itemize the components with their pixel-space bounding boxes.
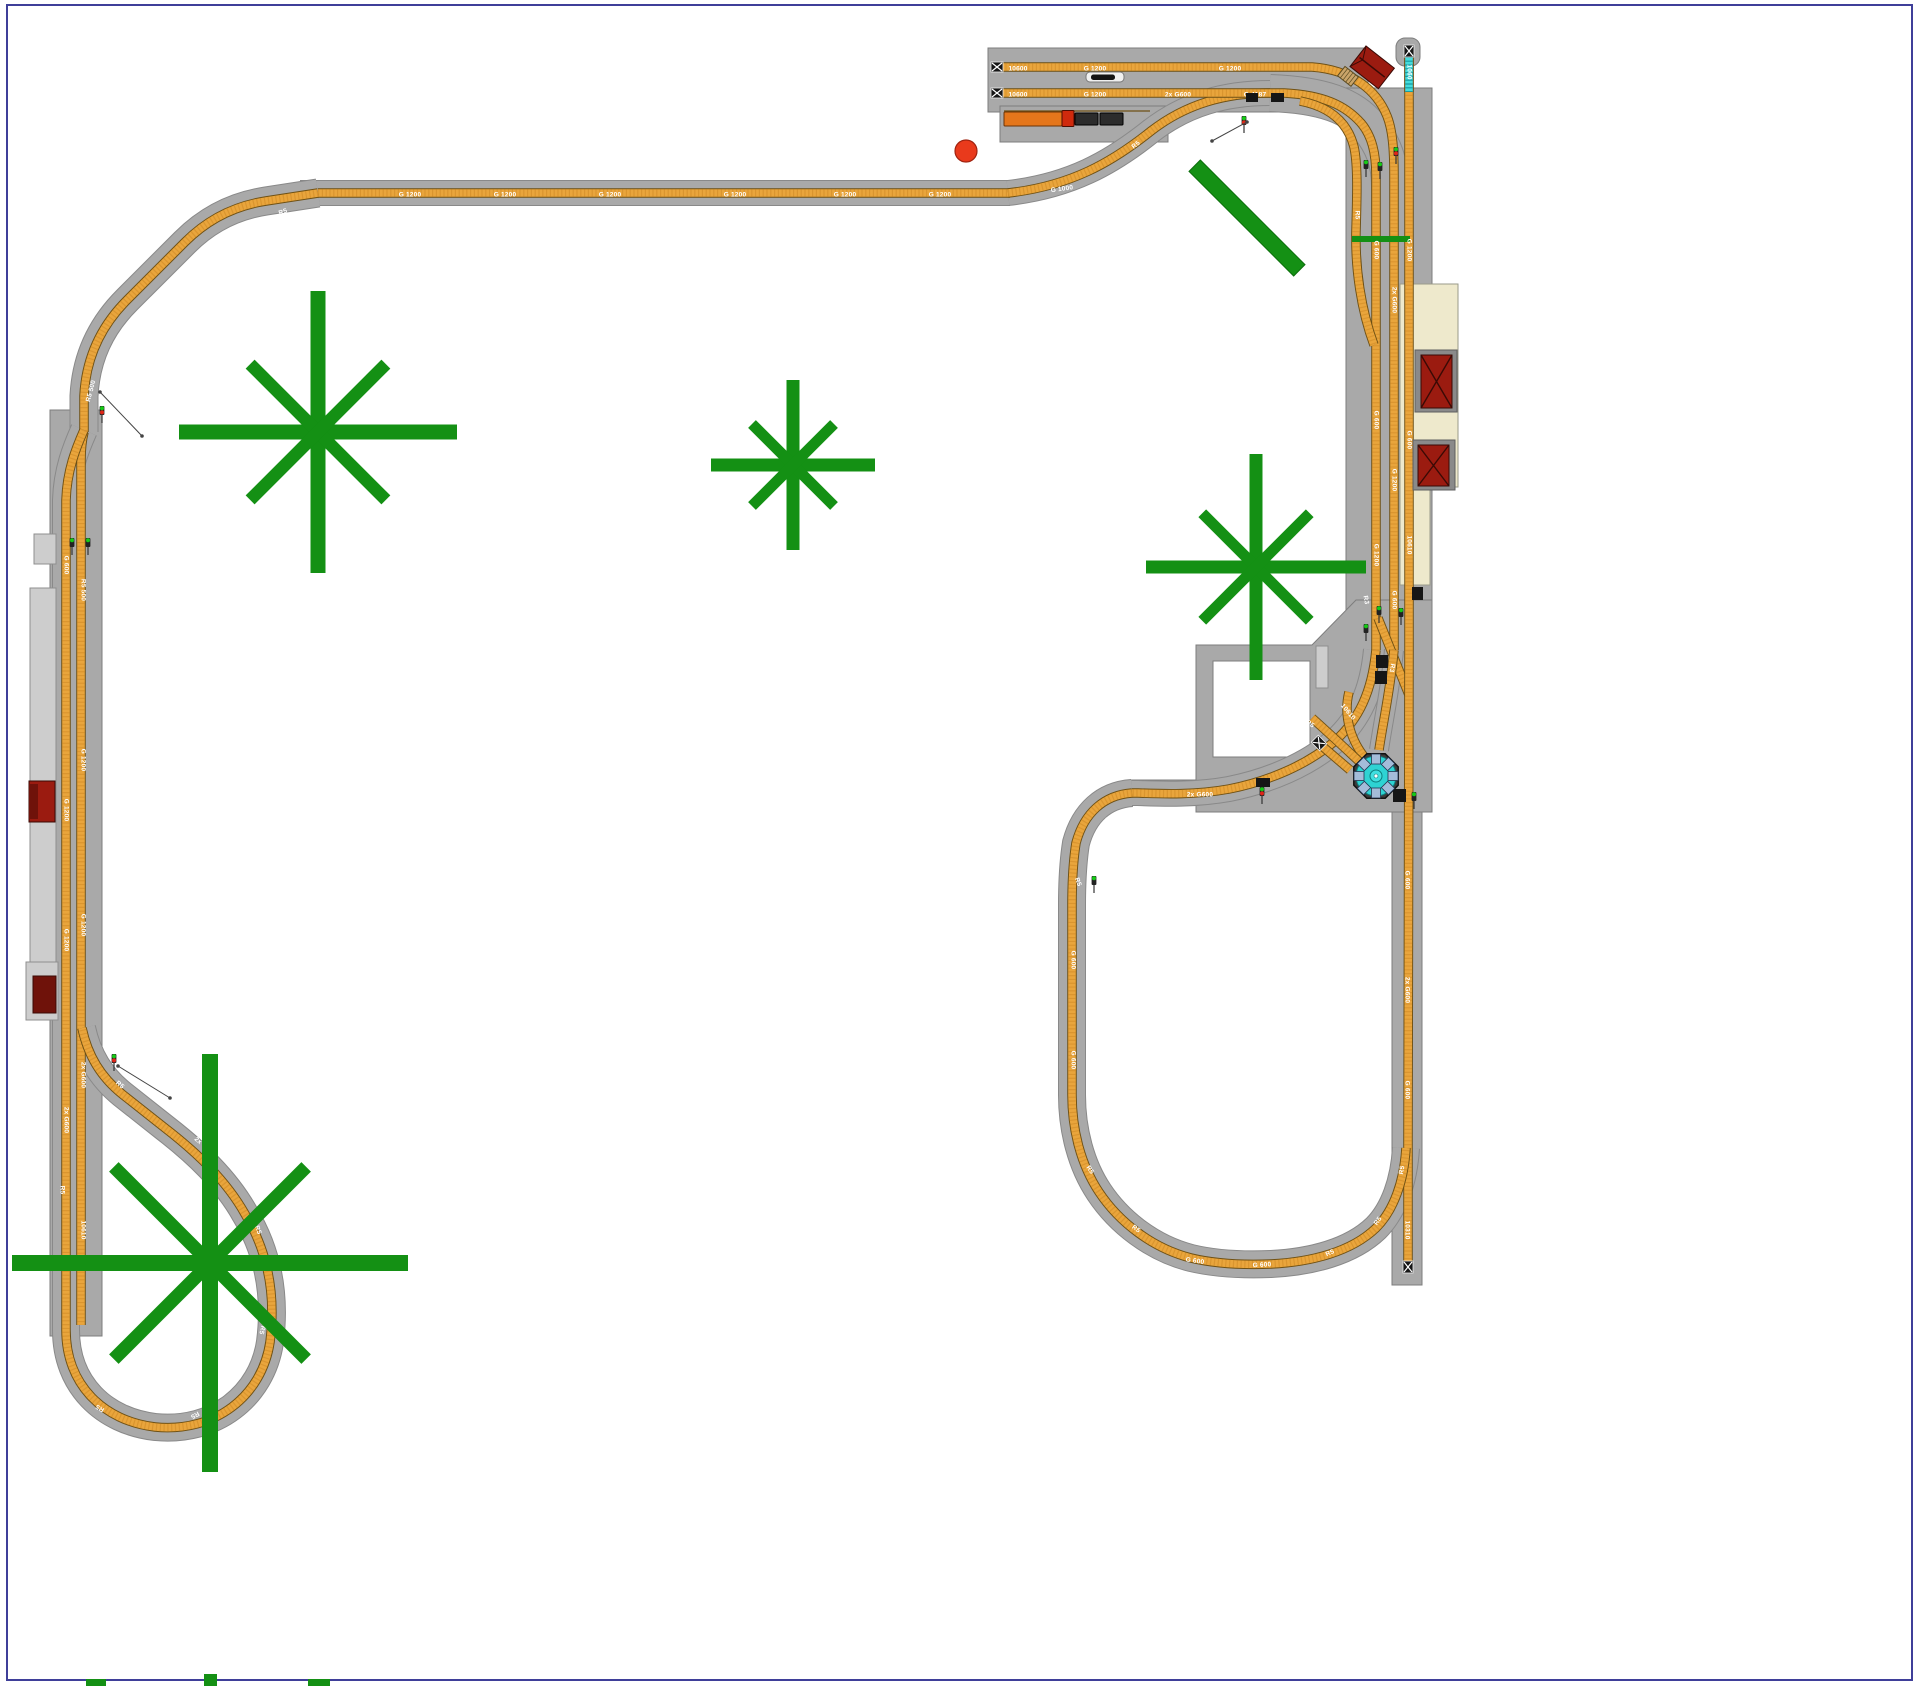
tree-tip-bottom-edge (86, 1679, 106, 1686)
track-label: G 600 (1069, 951, 1076, 970)
track-label: G 1200 (79, 749, 86, 772)
track-label: 2x G600 (1165, 92, 1192, 99)
measure-dot (1245, 120, 1249, 124)
stub-rect (1372, 788, 1381, 798)
track-label: G 1200 (599, 192, 622, 199)
buffer-stop[interactable] (1404, 45, 1414, 57)
track-label: 10610 (79, 1220, 86, 1239)
track-label: G 1200 (494, 192, 517, 199)
small-shed-left[interactable] (33, 976, 56, 1013)
track-label: G 1200 (62, 929, 69, 952)
turntable-stub-track (1388, 772, 1398, 781)
orange-train[interactable] (1004, 111, 1123, 127)
measure-dot (140, 434, 144, 438)
goods-shed-left-annex (29, 784, 38, 819)
buffer-stop[interactable] (991, 88, 1003, 98)
track-label: G 1200 (399, 192, 422, 199)
stub-rect (1388, 772, 1398, 781)
track-label: 2x G600 (62, 1107, 69, 1134)
signal-red-lamp (1394, 151, 1398, 155)
mid-right-platform (1316, 646, 1328, 688)
track-label: 10310 (1403, 1220, 1410, 1239)
signal-red-lamp (100, 410, 104, 414)
measure-dot (1210, 139, 1214, 143)
signal-red-lamp (1260, 791, 1264, 795)
track-label: 1060 (1405, 64, 1412, 79)
signal-green-lamp (70, 538, 74, 542)
track-label: G 600 (1252, 1261, 1271, 1269)
track-label: 2x G600 (1403, 977, 1410, 1004)
turntable-pivot (1374, 774, 1378, 778)
signal-green-lamp (1394, 147, 1398, 151)
orange-train-part (1075, 113, 1098, 125)
signal-green-lamp (1364, 624, 1368, 628)
signal-green-lamp (112, 1054, 116, 1058)
track-contact-strip (1352, 236, 1410, 242)
buffer-stop[interactable] (991, 62, 1003, 72)
signal-green-lamp (1260, 787, 1264, 791)
signal-green-lamp (1092, 876, 1096, 880)
track-label: R5 (1353, 211, 1360, 220)
orange-train-part (1004, 112, 1062, 126)
track-label: G 1200 (1372, 544, 1379, 567)
track-label: G 600 (1403, 1081, 1410, 1100)
track-label: G 600 (1390, 591, 1397, 610)
uncoupler-magnet[interactable] (1271, 93, 1284, 102)
track-label: G 1200 (1405, 239, 1412, 262)
left-platform (30, 588, 56, 962)
track-label: G 1200 (62, 799, 69, 822)
turntable-stub-track (1372, 754, 1381, 764)
track-label: 2x G600 (1187, 792, 1214, 799)
stub-rect (1354, 772, 1364, 781)
track-label: G 1200 (724, 192, 747, 199)
track-label: G 1200 (929, 192, 952, 199)
tree-tip-bottom-edge (308, 1679, 330, 1686)
orange-train-part (1062, 111, 1074, 127)
uncoupler-magnet[interactable] (1256, 778, 1270, 787)
white-locomotive[interactable] (1086, 72, 1124, 82)
uncoupler-magnet[interactable] (1412, 587, 1423, 600)
page-background (0, 0, 1919, 1686)
track-label: G 1200 (834, 192, 857, 199)
track-label: 2x G600 (1390, 287, 1397, 314)
track-label: 10610 (1405, 535, 1412, 554)
uncoupler-magnet[interactable] (1375, 671, 1387, 684)
buffer-stop[interactable] (1403, 1261, 1413, 1273)
track-label: G 600 (1372, 411, 1379, 430)
turntable-stub-track (1372, 788, 1381, 798)
uncoupler-magnet[interactable] (1393, 789, 1406, 802)
track-label: G 1200 (1084, 92, 1107, 99)
measure-dot (168, 1096, 172, 1100)
signal-green-lamp (1378, 162, 1382, 166)
track-plan-drawing: 10600G 1200G 120010600G 12002x G600G 418… (0, 0, 1919, 1686)
white-locomotive-part (1091, 75, 1115, 81)
tree-tip-bottom-edge (204, 1674, 217, 1686)
track-plan-canvas: 10600G 1200G 120010600G 12002x G600G 418… (0, 0, 1919, 1686)
uncoupler-magnet[interactable] (1246, 93, 1258, 102)
track-label: G 600 (1372, 241, 1379, 260)
turntable-stub-track (1354, 772, 1364, 781)
track-label: R5 500 (79, 579, 86, 601)
signal-green-lamp (86, 538, 90, 542)
signal-green-lamp (1399, 608, 1403, 612)
signal-green-lamp (100, 406, 104, 410)
track-label: G 600 (1405, 431, 1412, 450)
track-label: G 600 (1069, 1051, 1076, 1070)
signal-green-lamp (1242, 116, 1246, 120)
track-label: R5 (58, 1186, 65, 1195)
track-label: G 1200 (1390, 469, 1397, 492)
signal-green-lamp (1364, 160, 1368, 164)
signal-red-lamp (112, 1058, 116, 1062)
turntable[interactable] (1354, 754, 1398, 798)
stub-rect (1372, 754, 1381, 764)
uncoupler-magnet[interactable] (1376, 655, 1388, 668)
orange-train-part (1100, 113, 1123, 125)
signal-green-lamp (1412, 792, 1416, 796)
red-dot-marker[interactable] (955, 140, 977, 162)
track-label: 10600 (1008, 92, 1027, 99)
track-label: G 1200 (1219, 66, 1242, 73)
track-label: G 1200 (79, 914, 86, 937)
signal-green-lamp (1377, 606, 1381, 610)
track-label: 2x G600 (79, 1062, 86, 1089)
track-label: G 600 (1403, 871, 1410, 890)
measure-dot (116, 1064, 120, 1068)
track-label: 10600 (1008, 66, 1027, 73)
track-label: G 600 (62, 556, 69, 575)
measure-dot (98, 390, 102, 394)
left-platform-tab (34, 534, 56, 564)
